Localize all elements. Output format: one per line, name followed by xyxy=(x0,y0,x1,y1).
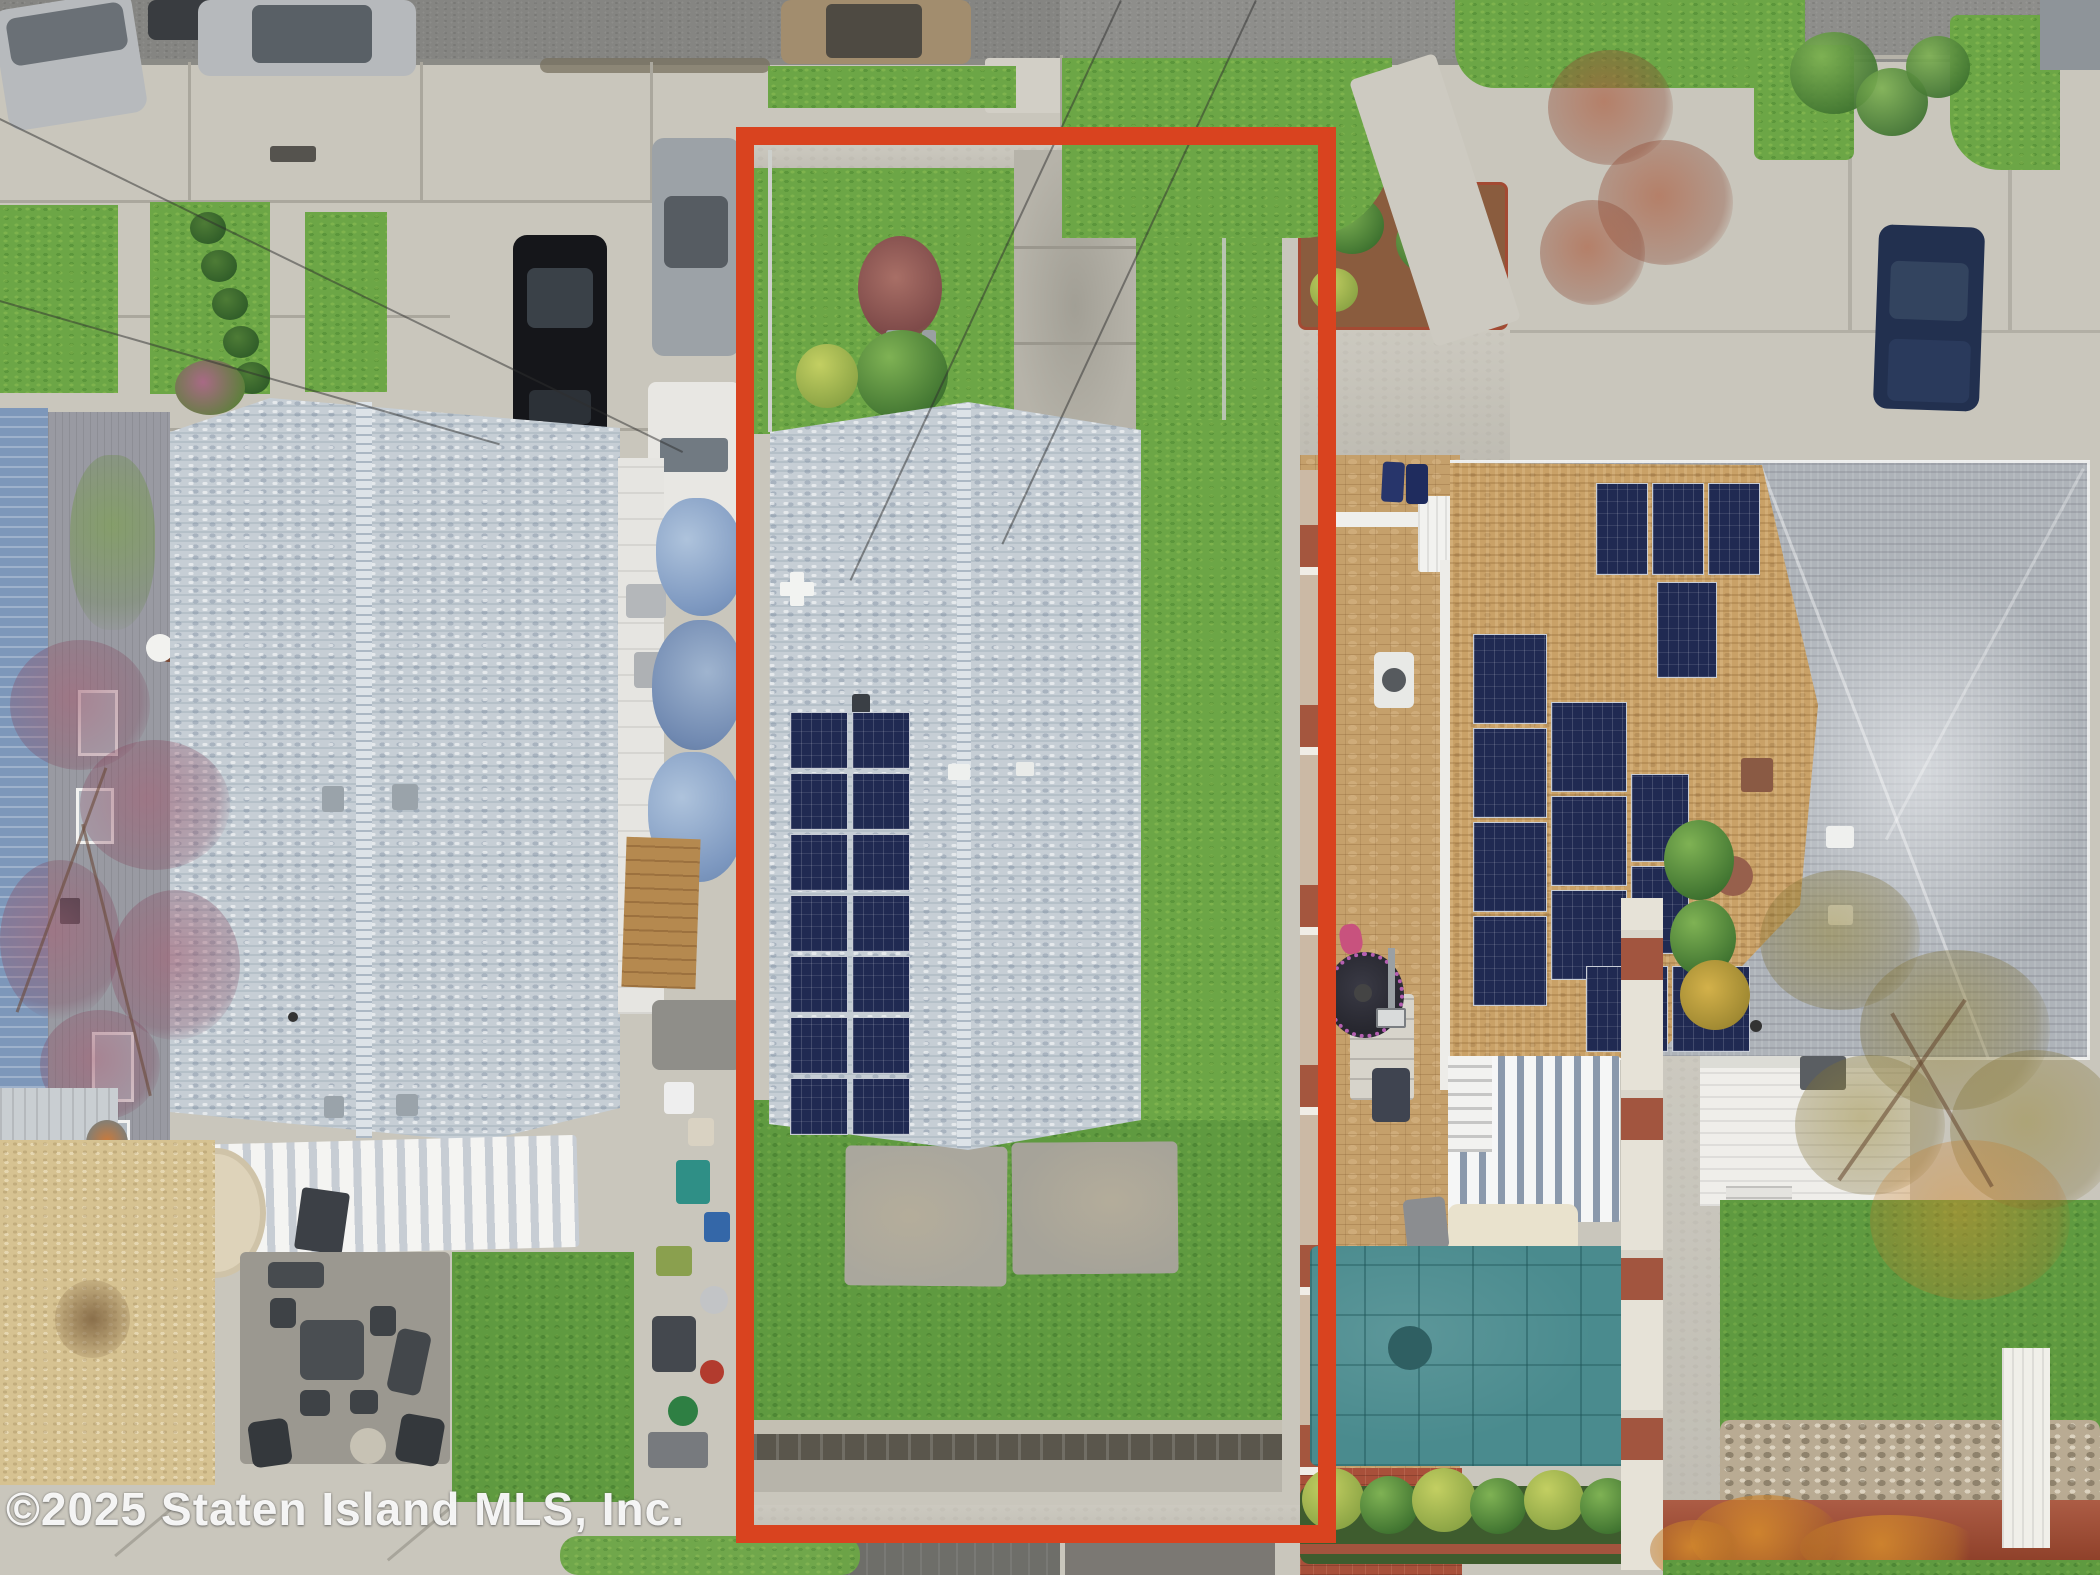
joint xyxy=(420,62,423,202)
brick-edging xyxy=(1300,1544,1666,1554)
property-boundary-highlight xyxy=(736,127,1336,1543)
car-hood xyxy=(1887,339,1971,404)
shrub-cluster xyxy=(1680,960,1750,1030)
car-glass xyxy=(252,5,372,63)
lamp-globe xyxy=(146,634,174,662)
maple-canopy xyxy=(0,860,120,1020)
patio-chair xyxy=(370,1306,396,1336)
gray-chair xyxy=(1402,1196,1449,1252)
grass-bottom-right xyxy=(1663,1560,2100,1575)
clutter xyxy=(688,1118,714,1146)
right-solar-panel xyxy=(1473,916,1547,1006)
car-glass xyxy=(664,196,728,268)
right-solar-panel xyxy=(1473,822,1547,912)
trash-bin xyxy=(1381,461,1405,502)
tarp-pile xyxy=(652,620,744,750)
patio-chair xyxy=(350,1390,378,1414)
right-solar-panel xyxy=(1708,483,1760,575)
car-glass xyxy=(527,268,593,328)
conifer xyxy=(212,288,248,320)
trampoline-pad xyxy=(1354,984,1372,1002)
left-roof-ridge xyxy=(356,402,372,1138)
hoop-board xyxy=(1376,1008,1406,1028)
joint xyxy=(188,62,191,202)
bench xyxy=(268,1262,324,1288)
car-glass xyxy=(660,438,728,472)
tarp-pile xyxy=(656,498,744,616)
patio-table xyxy=(300,1320,364,1380)
roof-vent xyxy=(392,784,418,810)
hedge xyxy=(1360,1476,1418,1534)
garage-roof xyxy=(830,1540,1060,1575)
clutter xyxy=(656,1246,692,1276)
roof-dot xyxy=(288,1012,298,1022)
hedge xyxy=(1470,1478,1526,1534)
hedge xyxy=(1412,1468,1476,1532)
front-lawn-left xyxy=(0,205,118,393)
gray-box xyxy=(626,584,666,618)
right-solar-panel xyxy=(1473,634,1547,724)
car-glass xyxy=(1889,261,1969,322)
conifer xyxy=(201,250,237,282)
left-house-roof xyxy=(170,398,620,1142)
curb-soil xyxy=(540,58,770,73)
joint xyxy=(0,200,700,203)
clutter xyxy=(652,1000,742,1070)
autumn-tree xyxy=(1540,200,1645,305)
dark-chair xyxy=(394,1413,446,1468)
clutter xyxy=(652,1316,696,1372)
trash-bin xyxy=(1406,464,1428,504)
mls-watermark: ©2025 Staten Island MLS, Inc. xyxy=(6,1482,685,1536)
right-solar-panel xyxy=(1596,483,1648,575)
round-table xyxy=(350,1428,386,1464)
clutter xyxy=(704,1212,730,1242)
white-fence-panel xyxy=(2002,1348,2050,1548)
maple-canopy xyxy=(80,740,230,870)
aerial-photo: ©2025 Staten Island MLS, Inc. xyxy=(0,0,2100,1575)
patio-chair xyxy=(300,1390,330,1416)
clutter xyxy=(648,1432,708,1468)
garage-roof xyxy=(1065,1542,1275,1575)
pool-cover xyxy=(1310,1246,1630,1466)
bins-dark xyxy=(1372,1068,1410,1122)
conifer xyxy=(223,326,259,358)
clutter xyxy=(700,1360,724,1384)
roof-vent xyxy=(396,1094,418,1116)
hedge xyxy=(1524,1470,1584,1530)
right-solar-panel xyxy=(1551,796,1627,886)
dead-patch xyxy=(55,1280,130,1358)
ac-fan xyxy=(1382,668,1406,692)
storm-drain xyxy=(270,146,316,162)
clutter xyxy=(700,1286,728,1314)
grill xyxy=(294,1187,350,1255)
roof-vent xyxy=(324,1096,344,1118)
plywood-board xyxy=(621,837,700,989)
big-tree xyxy=(1870,1140,2070,1300)
deck-ladder xyxy=(1448,1056,1492,1152)
pool-pump xyxy=(1388,1326,1432,1370)
shrub-cluster xyxy=(1664,820,1734,900)
vent-white xyxy=(1826,826,1854,848)
chimney-brown xyxy=(1741,758,1773,792)
right-solar-panel xyxy=(1657,582,1717,678)
vent-dark xyxy=(1750,1020,1762,1032)
building-corner xyxy=(2040,0,2100,70)
right-solar-panel xyxy=(1473,728,1547,818)
right-solar-panel xyxy=(1652,483,1704,575)
curb-lawn xyxy=(768,66,1016,108)
right-solar-panel xyxy=(1551,702,1627,792)
green-tree xyxy=(1906,36,1970,98)
car-glass xyxy=(826,4,922,58)
boundary-wall xyxy=(1621,898,1663,1570)
patio-lawn xyxy=(452,1252,634,1502)
clutter xyxy=(664,1082,694,1114)
roof-vent xyxy=(322,786,344,812)
dark-chair xyxy=(247,1417,293,1468)
fern-fronds xyxy=(70,455,155,630)
clutter xyxy=(668,1396,698,1426)
car-glass xyxy=(529,390,591,424)
clutter xyxy=(676,1160,710,1204)
patio-chair xyxy=(270,1298,296,1328)
hoop-pole xyxy=(1388,948,1395,1014)
